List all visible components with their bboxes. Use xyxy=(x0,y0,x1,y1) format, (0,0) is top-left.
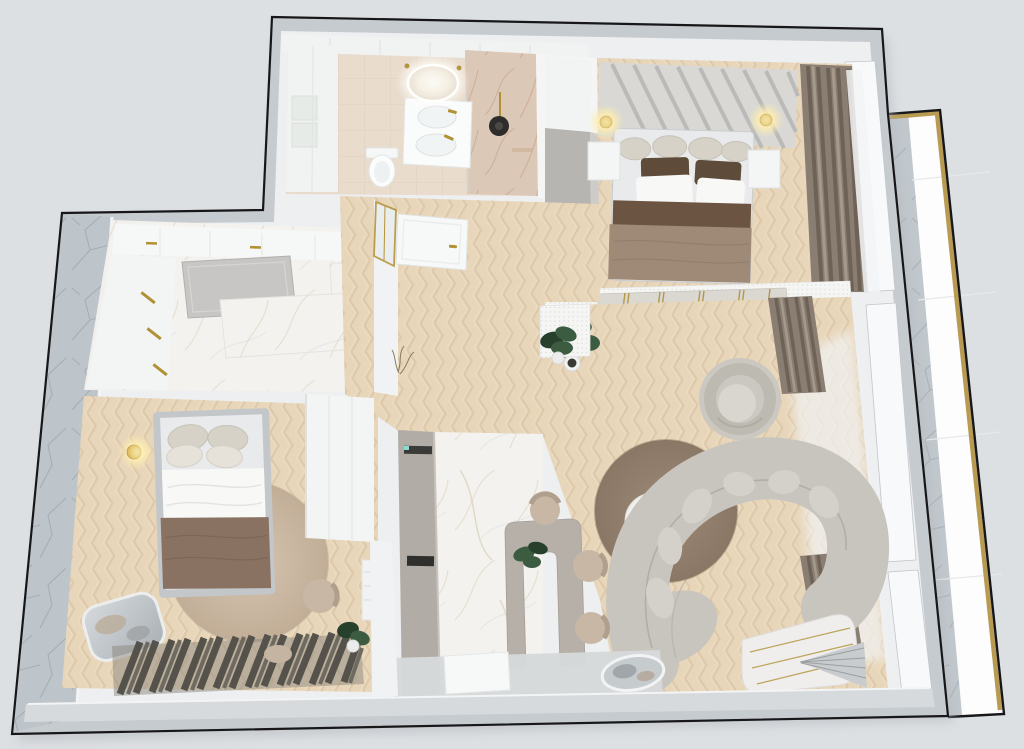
single-bed xyxy=(153,408,275,598)
white-sheet xyxy=(162,466,266,526)
gold-handle xyxy=(146,242,157,245)
glass-partition xyxy=(374,202,396,266)
room-bedroom-main xyxy=(588,58,880,296)
ottoman xyxy=(264,645,292,663)
double-bed xyxy=(608,128,754,284)
room-bedroom-second xyxy=(62,394,378,696)
nightstand-right xyxy=(748,150,780,188)
doormat xyxy=(444,652,510,694)
gold-door-handle xyxy=(449,245,457,249)
floorplan-render xyxy=(0,0,1024,749)
room-kitchen xyxy=(84,220,372,392)
appliance-slot xyxy=(407,556,434,566)
wardrobe xyxy=(306,394,374,542)
entry-door xyxy=(396,214,468,270)
brown-blanket xyxy=(161,514,272,592)
swivel-armchair xyxy=(699,358,781,440)
gold-handle xyxy=(250,246,261,249)
floorplan-svg xyxy=(0,0,1024,749)
marble-shower-column xyxy=(465,50,538,196)
bedroom-armchair xyxy=(303,579,337,613)
taupe-blanket xyxy=(608,224,751,283)
nightstand-left xyxy=(588,142,620,180)
